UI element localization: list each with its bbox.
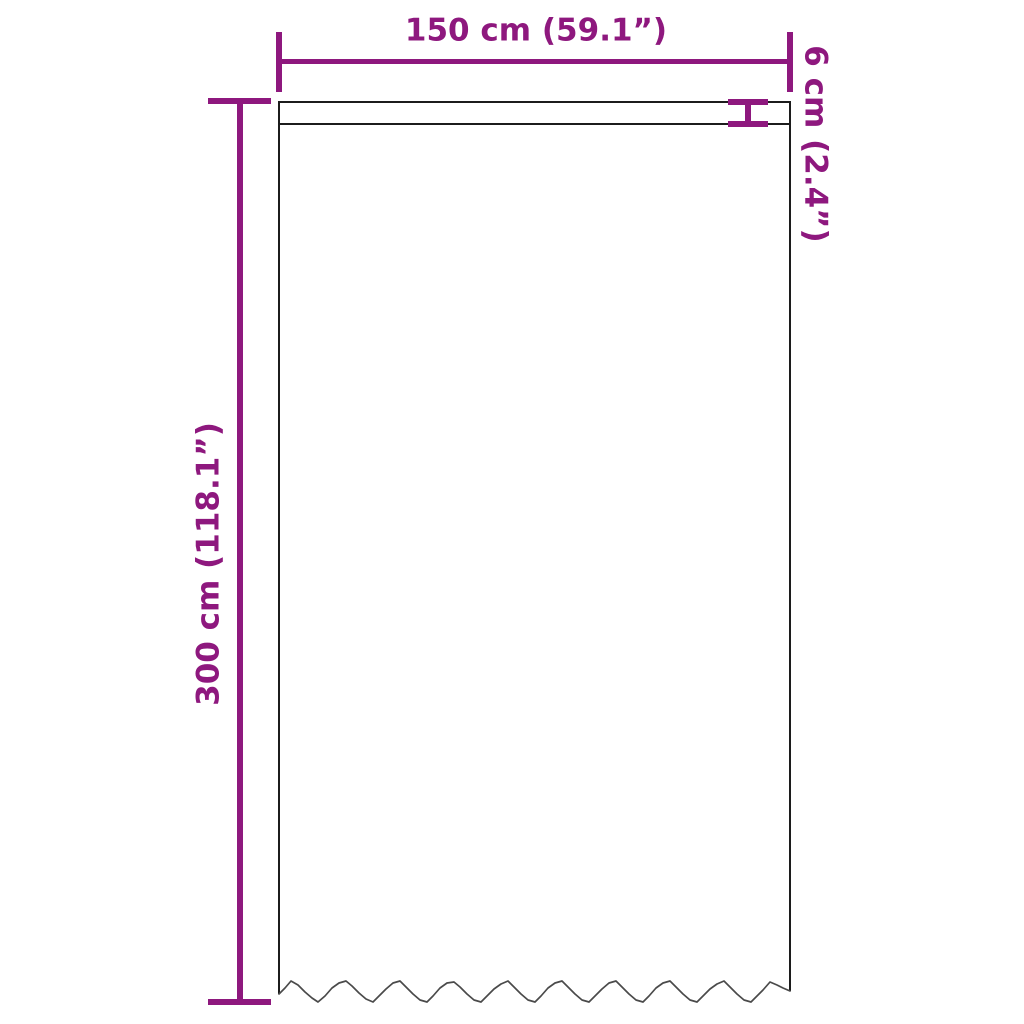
width-dimension-line: [278, 59, 792, 64]
curtain-dimension-diagram: 150 cm (59.1”) 300 cm (118.1”) 6 cm (2.4…: [0, 0, 1024, 1024]
curtain-wavy-hem: [279, 981, 790, 1002]
header-dimension-label: 6 cm (2.4”): [800, 45, 831, 242]
drop-dimension-line: [237, 100, 243, 1003]
header-dimension-stem: [745, 102, 751, 124]
drop-dimension-cap-top: [208, 98, 271, 104]
drop-dimension-cap-bottom: [208, 999, 271, 1005]
width-dimension-label: 150 cm (59.1”): [405, 16, 667, 47]
curtain-outline: [0, 0, 1024, 1024]
drop-dimension-label: 300 cm (118.1”): [194, 422, 225, 706]
